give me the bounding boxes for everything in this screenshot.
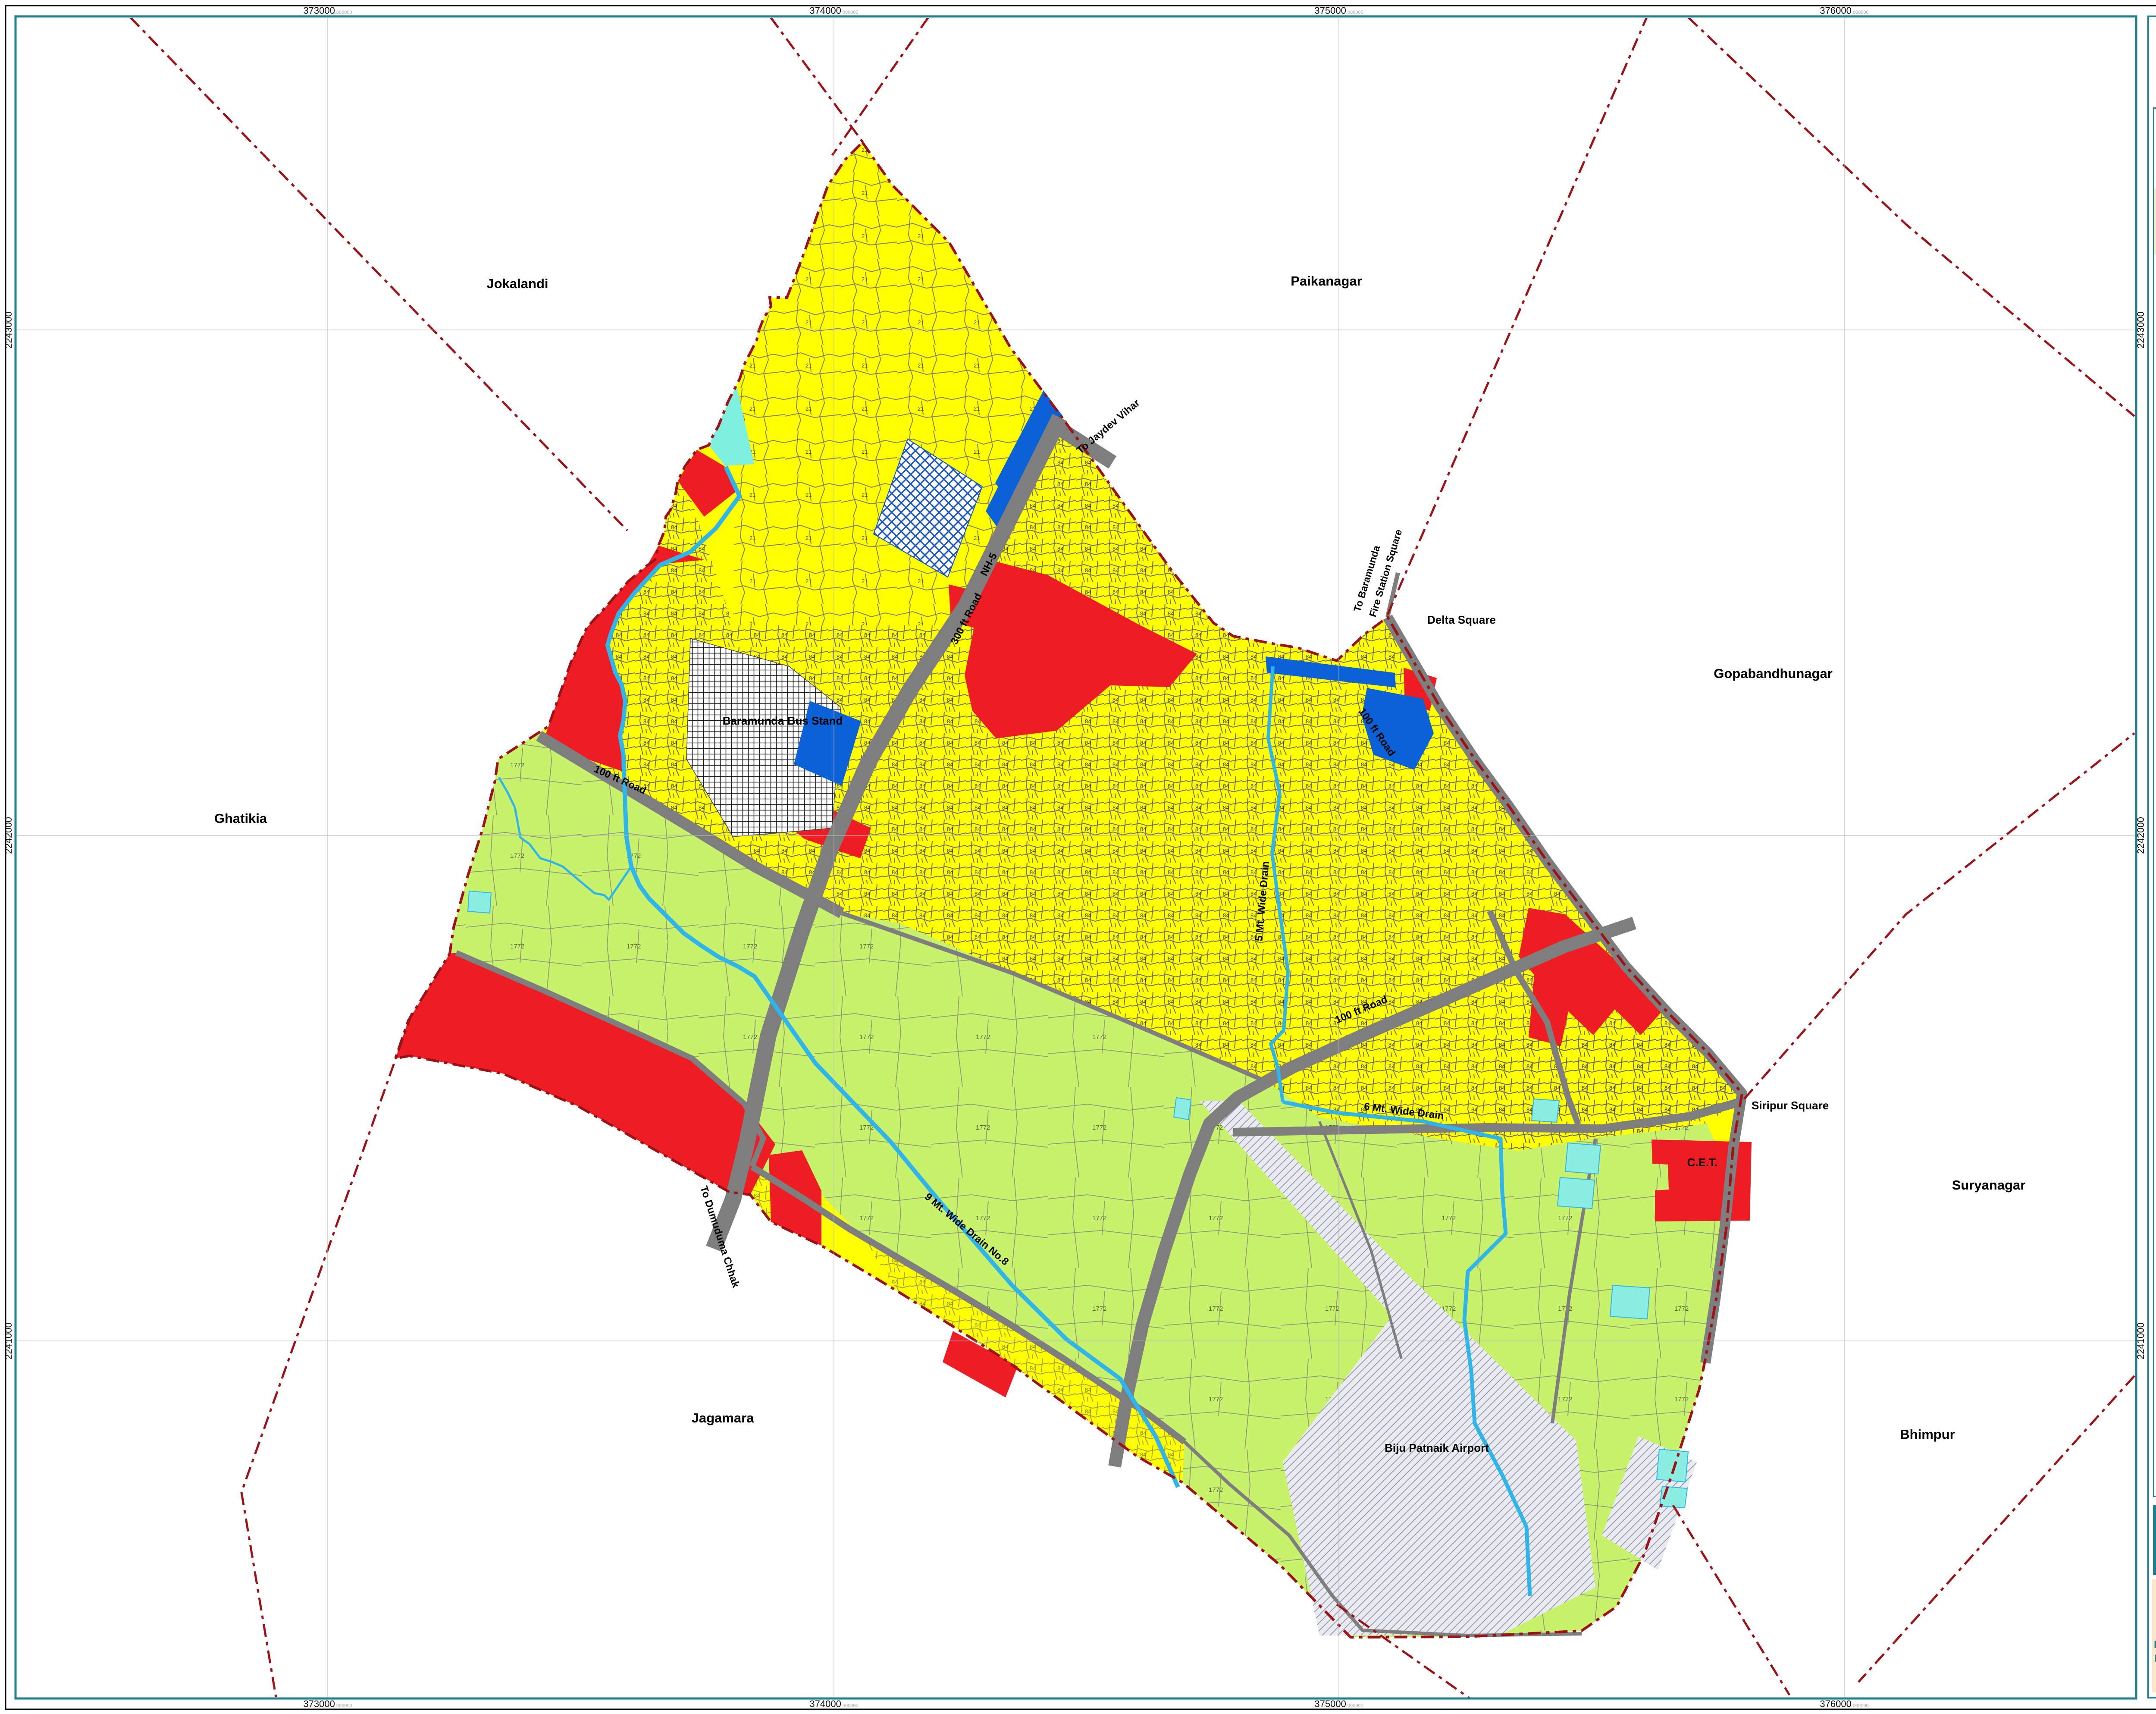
svg-text:374000.000000: 374000.000000 [809, 1698, 858, 1709]
svg-text:Baramunda Bus Stand: Baramunda Bus Stand [723, 714, 843, 727]
svg-text:Bhimpur: Bhimpur [1900, 1427, 1955, 1442]
svg-text:Paikanagar: Paikanagar [1291, 273, 1362, 289]
svg-text:2242000: 2242000 [3, 817, 14, 854]
svg-text:To Jaydev Vihar: To Jaydev Vihar [1075, 397, 1142, 456]
svg-text:373000.000000: 373000.000000 [303, 1698, 352, 1709]
svg-text:2243000: 2243000 [2135, 311, 2146, 348]
svg-text:Jokalandi: Jokalandi [487, 276, 548, 291]
svg-text:2241000: 2241000 [2135, 1322, 2146, 1359]
svg-text:Jagamara: Jagamara [692, 1410, 755, 1425]
svg-text:Ghatikia: Ghatikia [214, 811, 267, 826]
svg-text:2243000: 2243000 [3, 311, 14, 348]
svg-text:376000.000000: 376000.000000 [1820, 1698, 1868, 1709]
svg-text:2242000: 2242000 [2135, 817, 2146, 854]
svg-text:Suryanagar: Suryanagar [1952, 1177, 2026, 1193]
svg-text:2241000: 2241000 [3, 1322, 14, 1359]
svg-text:374000.000000: 374000.000000 [809, 5, 858, 16]
svg-text:375000.000000: 375000.000000 [1314, 5, 1363, 16]
svg-text:373000.000000: 373000.000000 [303, 5, 352, 16]
svg-text:Gopabandhunagar: Gopabandhunagar [1714, 666, 1833, 681]
svg-text:375000.000000: 375000.000000 [1314, 1698, 1363, 1709]
svg-text:Delta Square: Delta Square [1427, 613, 1496, 626]
svg-text:C.E.T.: C.E.T. [1687, 1156, 1718, 1169]
svg-text:Biju Patnaik Airport: Biju Patnaik Airport [1385, 1441, 1489, 1454]
svg-text:376000.000000: 376000.000000 [1820, 5, 1868, 16]
svg-text:Siripur Square: Siripur Square [1752, 1099, 1829, 1112]
